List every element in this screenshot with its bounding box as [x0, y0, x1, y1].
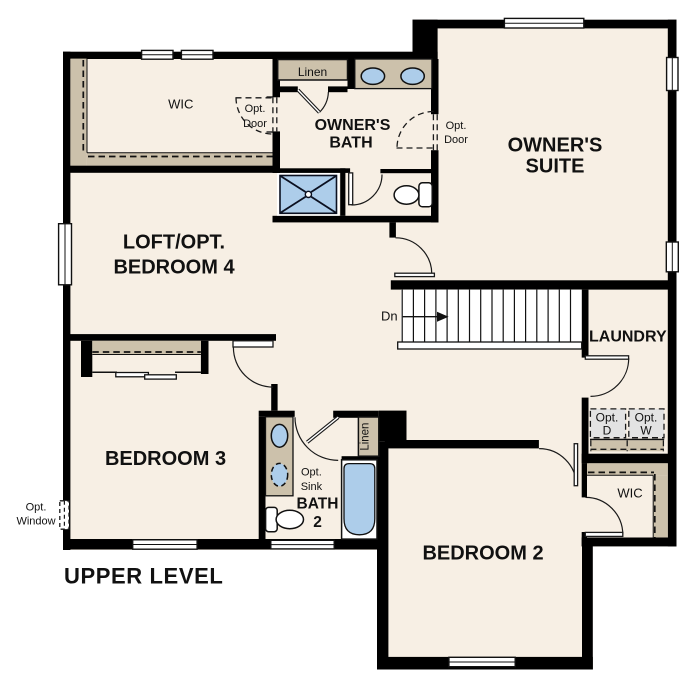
- svg-text:W: W: [640, 423, 652, 437]
- svg-text:Sink: Sink: [301, 481, 323, 493]
- svg-text:BEDROOM 3: BEDROOM 3: [105, 448, 226, 470]
- svg-text:Opt.: Opt.: [301, 467, 322, 479]
- svg-text:BEDROOM 2: BEDROOM 2: [422, 543, 543, 565]
- svg-text:Opt.: Opt.: [446, 120, 467, 132]
- svg-text:WIC: WIC: [168, 97, 193, 112]
- svg-text:Door: Door: [243, 118, 267, 130]
- svg-text:LAUNDRY: LAUNDRY: [589, 328, 667, 345]
- svg-text:2: 2: [313, 514, 322, 531]
- svg-text:Dn: Dn: [381, 308, 398, 323]
- svg-text:BATH: BATH: [297, 496, 339, 513]
- svg-text:Window: Window: [16, 516, 55, 528]
- svg-text:Opt.: Opt.: [245, 103, 266, 115]
- svg-text:UPPER LEVEL: UPPER LEVEL: [64, 564, 223, 589]
- svg-text:LOFT/OPT.: LOFT/OPT.: [123, 232, 225, 254]
- svg-text:BEDROOM 4: BEDROOM 4: [113, 256, 235, 278]
- svg-text:Opt.: Opt.: [596, 410, 619, 424]
- svg-text:OWNER'S: OWNER'S: [508, 135, 603, 157]
- svg-text:Linen: Linen: [360, 423, 372, 451]
- svg-text:Opt.: Opt.: [26, 502, 47, 514]
- svg-text:D: D: [603, 423, 612, 437]
- svg-text:SUITE: SUITE: [526, 156, 585, 178]
- svg-text:Opt.: Opt.: [635, 410, 658, 424]
- svg-text:OWNER'S: OWNER'S: [315, 117, 391, 134]
- svg-text:WIC: WIC: [617, 486, 642, 501]
- svg-text:Linen: Linen: [298, 65, 327, 79]
- svg-text:BATH: BATH: [329, 135, 372, 152]
- svg-text:Door: Door: [444, 134, 468, 146]
